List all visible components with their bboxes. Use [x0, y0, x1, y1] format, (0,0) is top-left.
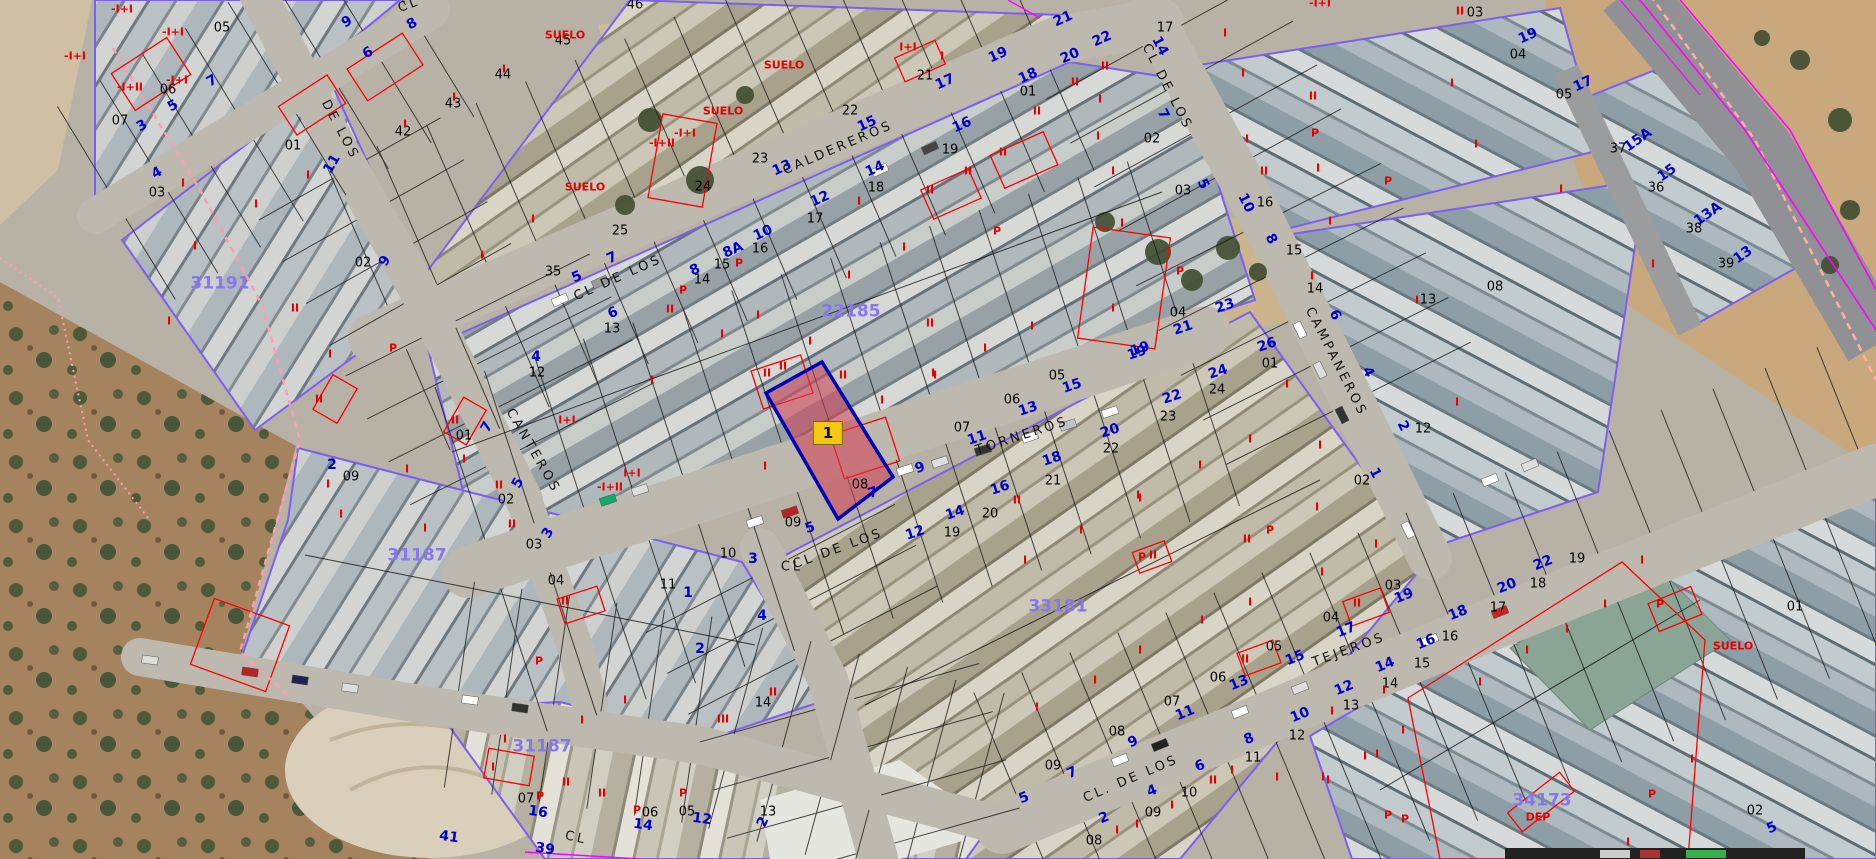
- aerial-map-image: [0, 0, 1876, 859]
- selected-parcel-number: 1: [823, 424, 833, 442]
- truck-row: [1505, 848, 1805, 859]
- selected-parcel-badge: 1: [813, 421, 843, 445]
- map-canvas[interactable]: 0506070103024645444342352524232122170119…: [0, 0, 1876, 859]
